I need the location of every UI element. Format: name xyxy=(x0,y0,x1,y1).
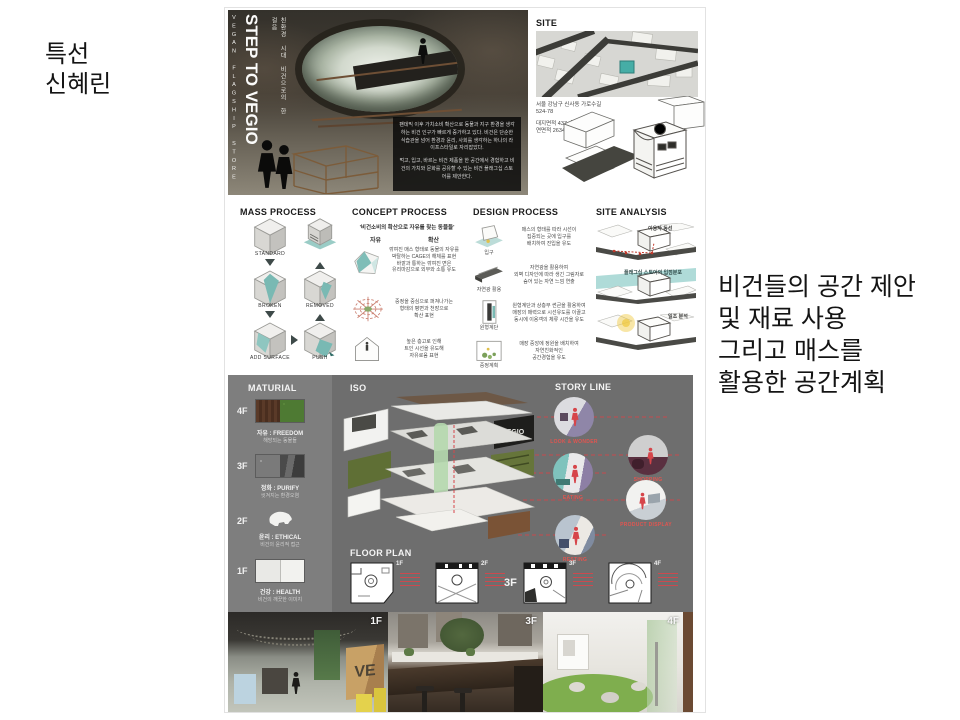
daylight-diagram-icon xyxy=(473,261,505,287)
concept-keyword-1: 자유 xyxy=(370,235,381,244)
white-tile-swatch xyxy=(256,560,281,582)
hero-intro-box: 팬데믹 이후 가치소비 확산으로 동물과 지구 환경을 생각하는 비건 인구가 … xyxy=(393,117,521,191)
stool-seat xyxy=(416,686,434,691)
render-strip: VE 1F 3F xyxy=(228,612,693,712)
red-figure-icon xyxy=(570,407,580,427)
mass-process-section: MASS PROCESS STANDARD BROKEN REMOVED ADD… xyxy=(240,195,348,375)
stool-leg xyxy=(460,692,465,712)
stool-leg xyxy=(422,690,427,712)
material-title: MATURIAL xyxy=(248,383,297,393)
stool xyxy=(601,692,619,703)
design-caption-2: 자연광을 활용하여 외벽 디자인에 따라 생긴 그림자로 숨어 있는 자연 느낌… xyxy=(509,265,589,285)
house-icon xyxy=(352,335,382,363)
material-caption-4f: 자유 : FREEDOM xyxy=(234,428,326,437)
site-analysis-title: SITE ANALYSIS xyxy=(596,207,667,217)
mass-step-label: ADD SURFACE xyxy=(242,355,298,361)
material-swatch-1f xyxy=(256,560,304,582)
design-label-2: 자연광 활용 xyxy=(471,287,507,294)
poster-board: 팬데믹 이후 가치소비 확산으로 동물과 지구 환경을 생각하는 비건 인구가 … xyxy=(225,8,705,712)
material-swatch-3f xyxy=(256,455,304,477)
stone-swatch xyxy=(256,455,280,477)
material-swatch-4f xyxy=(256,400,304,422)
mass-step-label: STANDARD xyxy=(242,251,298,257)
material-section: MATURIAL 4F 자유 : FREEDOM 해방되는 동물들 3F 정화 … xyxy=(228,375,332,612)
site-marker xyxy=(620,61,634,73)
white-tile-swatch xyxy=(281,560,305,582)
site-panel: SITE xyxy=(528,10,705,195)
glass-panel xyxy=(647,620,677,712)
red-figure-icon xyxy=(570,464,580,484)
render-panel-4f: 4F xyxy=(543,612,693,712)
plan-legend-2f xyxy=(485,573,505,589)
material-caption-3f: 정화 : PURIFY xyxy=(234,483,326,492)
material-floor-1f: 1F xyxy=(237,566,248,576)
story-scene-3 xyxy=(553,453,593,493)
polar-bear-icon xyxy=(266,509,294,527)
hero-intro-paragraph-1: 팬데믹 이후 가치소비 확산으로 동물과 지구 환경을 생각하는 비건 인구가 … xyxy=(399,122,515,153)
floorplan-4f xyxy=(608,562,652,604)
green-wall xyxy=(314,630,340,680)
plant xyxy=(404,648,414,656)
design-process-title: DESIGN PROCESS xyxy=(473,207,558,217)
gem-icon xyxy=(352,249,382,277)
dark-wall xyxy=(514,666,543,712)
floorplan-2f xyxy=(435,562,479,604)
concept-caption-1: 깎여진 매스 형태로 동물의 자유를 박탈하는 CAGE의 해체를 표현 바깥과… xyxy=(384,247,464,274)
gray-band: MATURIAL 4F 자유 : FREEDOM 해방되는 동물들 3F 정화 … xyxy=(228,375,693,612)
stool xyxy=(569,682,585,692)
yellow-block xyxy=(356,694,372,712)
hero-side-label: VEGAN FLAGSHIP STORE xyxy=(231,15,237,191)
caption-line-4: 활용한 공간계획 xyxy=(718,367,916,399)
radial-diagram-icon xyxy=(352,295,384,323)
design-label-1: 입구 xyxy=(471,250,507,257)
ve-sign-text: VE xyxy=(354,662,375,682)
stool-seat xyxy=(454,688,472,693)
glass-mullion xyxy=(655,642,658,706)
person-silhouette xyxy=(290,666,302,700)
grass-floor xyxy=(543,674,653,712)
red-figure-icon xyxy=(646,447,655,465)
render-panel-3f: 3F xyxy=(388,612,543,712)
site-axon-drawing xyxy=(562,96,705,195)
design-caption-4: 매장 중앙에 정원을 배치하여 자연친화적인 공간경험을 유도 xyxy=(509,341,589,361)
floorplan-1f xyxy=(350,562,394,604)
scene-detail xyxy=(648,493,660,504)
arrow-up-icon xyxy=(315,257,325,269)
yellow-block xyxy=(374,688,386,712)
concept-caption-3: 높은 층고로 인해 트인 시선을 유도해 자유로움 표현 xyxy=(384,339,464,359)
scene-detail xyxy=(556,479,570,485)
hero-title: STEP TO VEGIO xyxy=(241,14,261,148)
hero-subtitle: 친환경 시대 비건으로의 한 걸음 xyxy=(269,17,287,121)
mass-step-label: PUSH xyxy=(292,355,348,361)
concept-process-section: CONCEPT PROCESS '비건소비의 확산으로 자유를 찾는 동물들' … xyxy=(348,195,466,375)
material-floor-3f: 3F xyxy=(237,461,248,471)
caption-line-1: 비건들의 공간 제안 xyxy=(718,271,916,303)
design-label-3: 원형계단 xyxy=(471,325,507,332)
analysis-circulation-diagram xyxy=(596,223,696,260)
wood-column xyxy=(683,612,693,712)
caption-line-3: 그리고 매스를 xyxy=(718,335,916,367)
wood-swatch xyxy=(256,400,280,422)
material-sub-4f: 해방되는 동물들 xyxy=(234,437,326,444)
concept-process-title: CONCEPT PROCESS xyxy=(352,207,447,217)
material-sub-1f: 비건의 깨끗한 이미지 xyxy=(234,596,326,603)
blue-display-box xyxy=(234,674,256,704)
dark-stone-swatch xyxy=(280,455,304,477)
floorplan-highlight-label: 3F xyxy=(504,577,517,589)
plan-label-3f: 3F xyxy=(569,561,576,567)
stair-diagram-icon xyxy=(473,299,505,325)
story-scene-5 xyxy=(555,515,595,555)
kiosk-graphic xyxy=(288,136,382,194)
site-analysis-section: SITE ANALYSIS 이용자 동선 xyxy=(594,195,702,375)
scene-detail xyxy=(559,539,569,548)
story-caption-4: PRODUCT DISPLAY xyxy=(611,522,681,528)
render-label-3f: 3F xyxy=(525,616,537,627)
render-label-1f: 1F xyxy=(370,616,382,627)
plan-label-4f: 4F xyxy=(654,561,661,567)
analysis-label-1: 이용자 동선 xyxy=(648,225,672,232)
render-label-4f: 4F xyxy=(667,616,679,627)
story-scene-4 xyxy=(626,480,666,520)
story-scene-1 xyxy=(554,397,594,437)
jury-caption: 비건들의 공간 제안 및 재료 사용 그리고 매스를 활용한 공간계획 xyxy=(718,271,916,399)
tree-canopy xyxy=(440,618,484,652)
garden-diagram-icon xyxy=(473,337,505,363)
award-label: 특선 신혜린 xyxy=(45,40,111,100)
caption-line-2: 및 재료 사용 xyxy=(718,303,916,335)
concept-caption-2: 중정을 중심으로 퍼져나가는 형태의 평면과 천장으로 확산 표현 xyxy=(384,299,464,319)
material-sub-2f: 비건의 윤리적 접근 xyxy=(234,541,326,548)
iso-exploded-axon: VEGIO xyxy=(336,389,548,545)
oculus-skylight-graphic xyxy=(302,26,458,112)
material-sub-3f: 씻겨지는 환경오염 xyxy=(234,492,326,499)
design-label-4: 중정계획 xyxy=(471,363,507,370)
city-building xyxy=(398,614,428,648)
design-process-section: DESIGN PROCESS 입구 매스의 형태를 따라 시선이 집중되는 곳에… xyxy=(471,195,589,375)
stool xyxy=(631,682,646,691)
design-caption-1: 매스의 형태를 따라 시선이 집중되는 곳에 입구를 배치하여 진입을 유도 xyxy=(509,227,589,247)
floorplan-title: FLOOR PLAN xyxy=(350,548,412,558)
display-stand xyxy=(262,668,288,694)
appliance xyxy=(563,640,575,656)
concept-quote: '비건소비의 확산으로 자유를 찾는 동물들' xyxy=(348,223,466,231)
mass-step-label: BROKEN xyxy=(242,303,298,309)
storyline-title: STORY LINE xyxy=(555,382,611,392)
arrow-up-icon xyxy=(315,309,325,321)
red-figure-icon xyxy=(571,526,581,546)
plan-label-1f: 1F xyxy=(396,561,403,567)
plan-legend-1f xyxy=(400,573,420,589)
story-scene-2 xyxy=(628,435,668,475)
scene-detail xyxy=(560,413,568,421)
analysis-label-2: 플래그십 스토어의 입점분포 xyxy=(624,269,682,276)
material-floor-4f: 4F xyxy=(237,406,248,416)
hero-image: 팬데믹 이후 가치소비 확산으로 동물과 지구 환경을 생각하는 비건 인구가 … xyxy=(228,10,528,195)
scene-detail xyxy=(632,459,644,469)
plan-legend-4f xyxy=(658,573,678,589)
site-map xyxy=(536,31,698,97)
entry-diagram-icon xyxy=(473,223,505,249)
material-caption-1f: 건강 : HEALTH xyxy=(234,587,326,596)
plant xyxy=(466,648,475,656)
cube-final-icon xyxy=(302,215,338,255)
material-caption-2f: 윤리 : ETHICAL xyxy=(234,532,326,541)
slide-canvas: 특선 신혜린 비건들의 공간 제안 및 재료 사용 그리고 매스를 활용한 공간… xyxy=(0,0,960,720)
story-caption-1: LOOK & WONDER xyxy=(539,439,609,445)
person-silhouette xyxy=(272,140,296,194)
process-band: MASS PROCESS STANDARD BROKEN REMOVED ADD… xyxy=(228,195,705,375)
material-floor-2f: 2F xyxy=(237,516,248,526)
design-caption-3: 원형계단과 상층부 썬큰을 활용하여 매장의 매력으로 시선유도를 이끌고 동시… xyxy=(509,303,589,323)
red-figure-icon xyxy=(638,492,647,510)
grass-swatch xyxy=(280,400,304,422)
analysis-label-3: 일조 분석 xyxy=(668,313,688,320)
render-panel-1f: VE 1F xyxy=(228,612,388,712)
award-line-2: 신혜린 xyxy=(45,70,111,100)
floorplan-3f xyxy=(523,562,567,604)
plan-label-2f: 2F xyxy=(481,561,488,567)
site-title: SITE xyxy=(536,18,557,28)
hero-intro-paragraph-2: 먹고, 입고, 바르는 비건 제품을 한 공간에서 경험하고 비건의 가치와 문… xyxy=(399,158,515,181)
plan-legend-3f xyxy=(573,573,593,589)
story-caption-3: EATING xyxy=(538,495,608,501)
concept-keyword-2: 확산 xyxy=(428,235,439,244)
award-line-1: 특선 xyxy=(45,40,111,70)
person-silhouette xyxy=(416,38,430,64)
